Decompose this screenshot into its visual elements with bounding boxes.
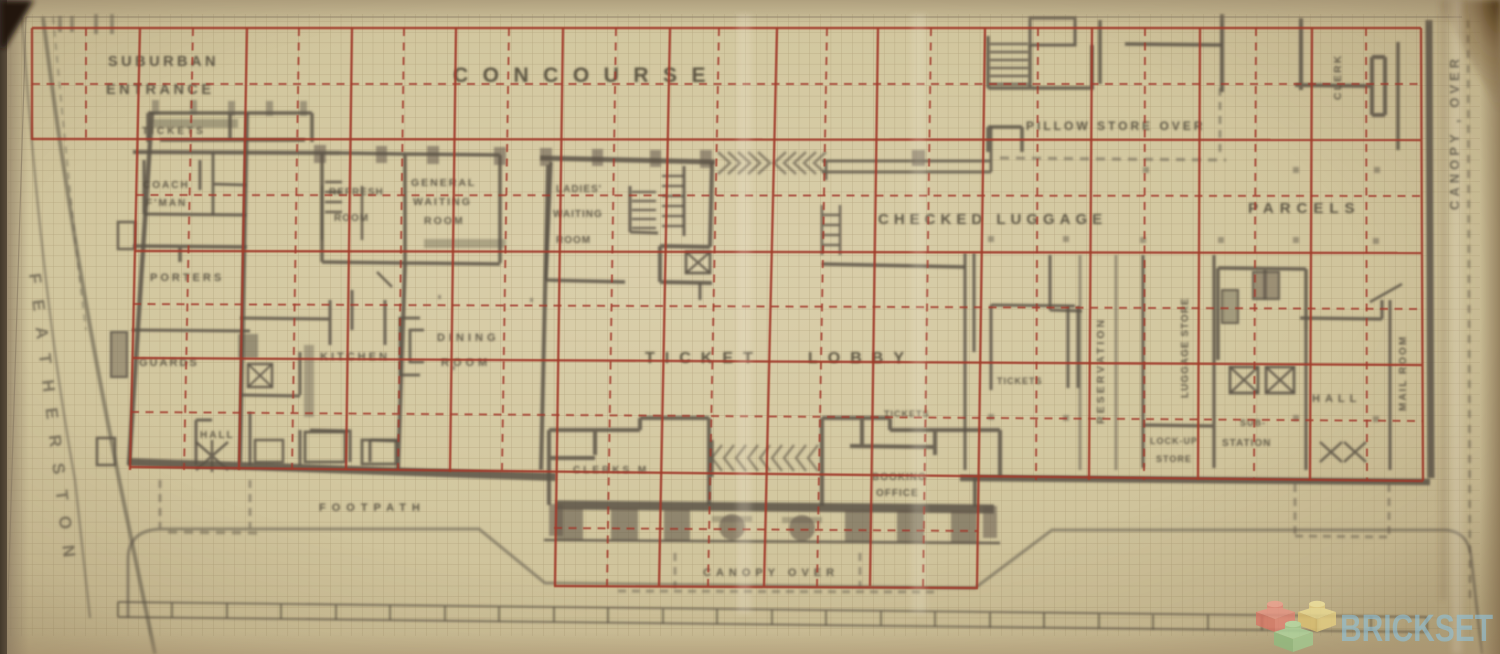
svg-text:BRICKSET: BRICKSET (1340, 608, 1493, 650)
